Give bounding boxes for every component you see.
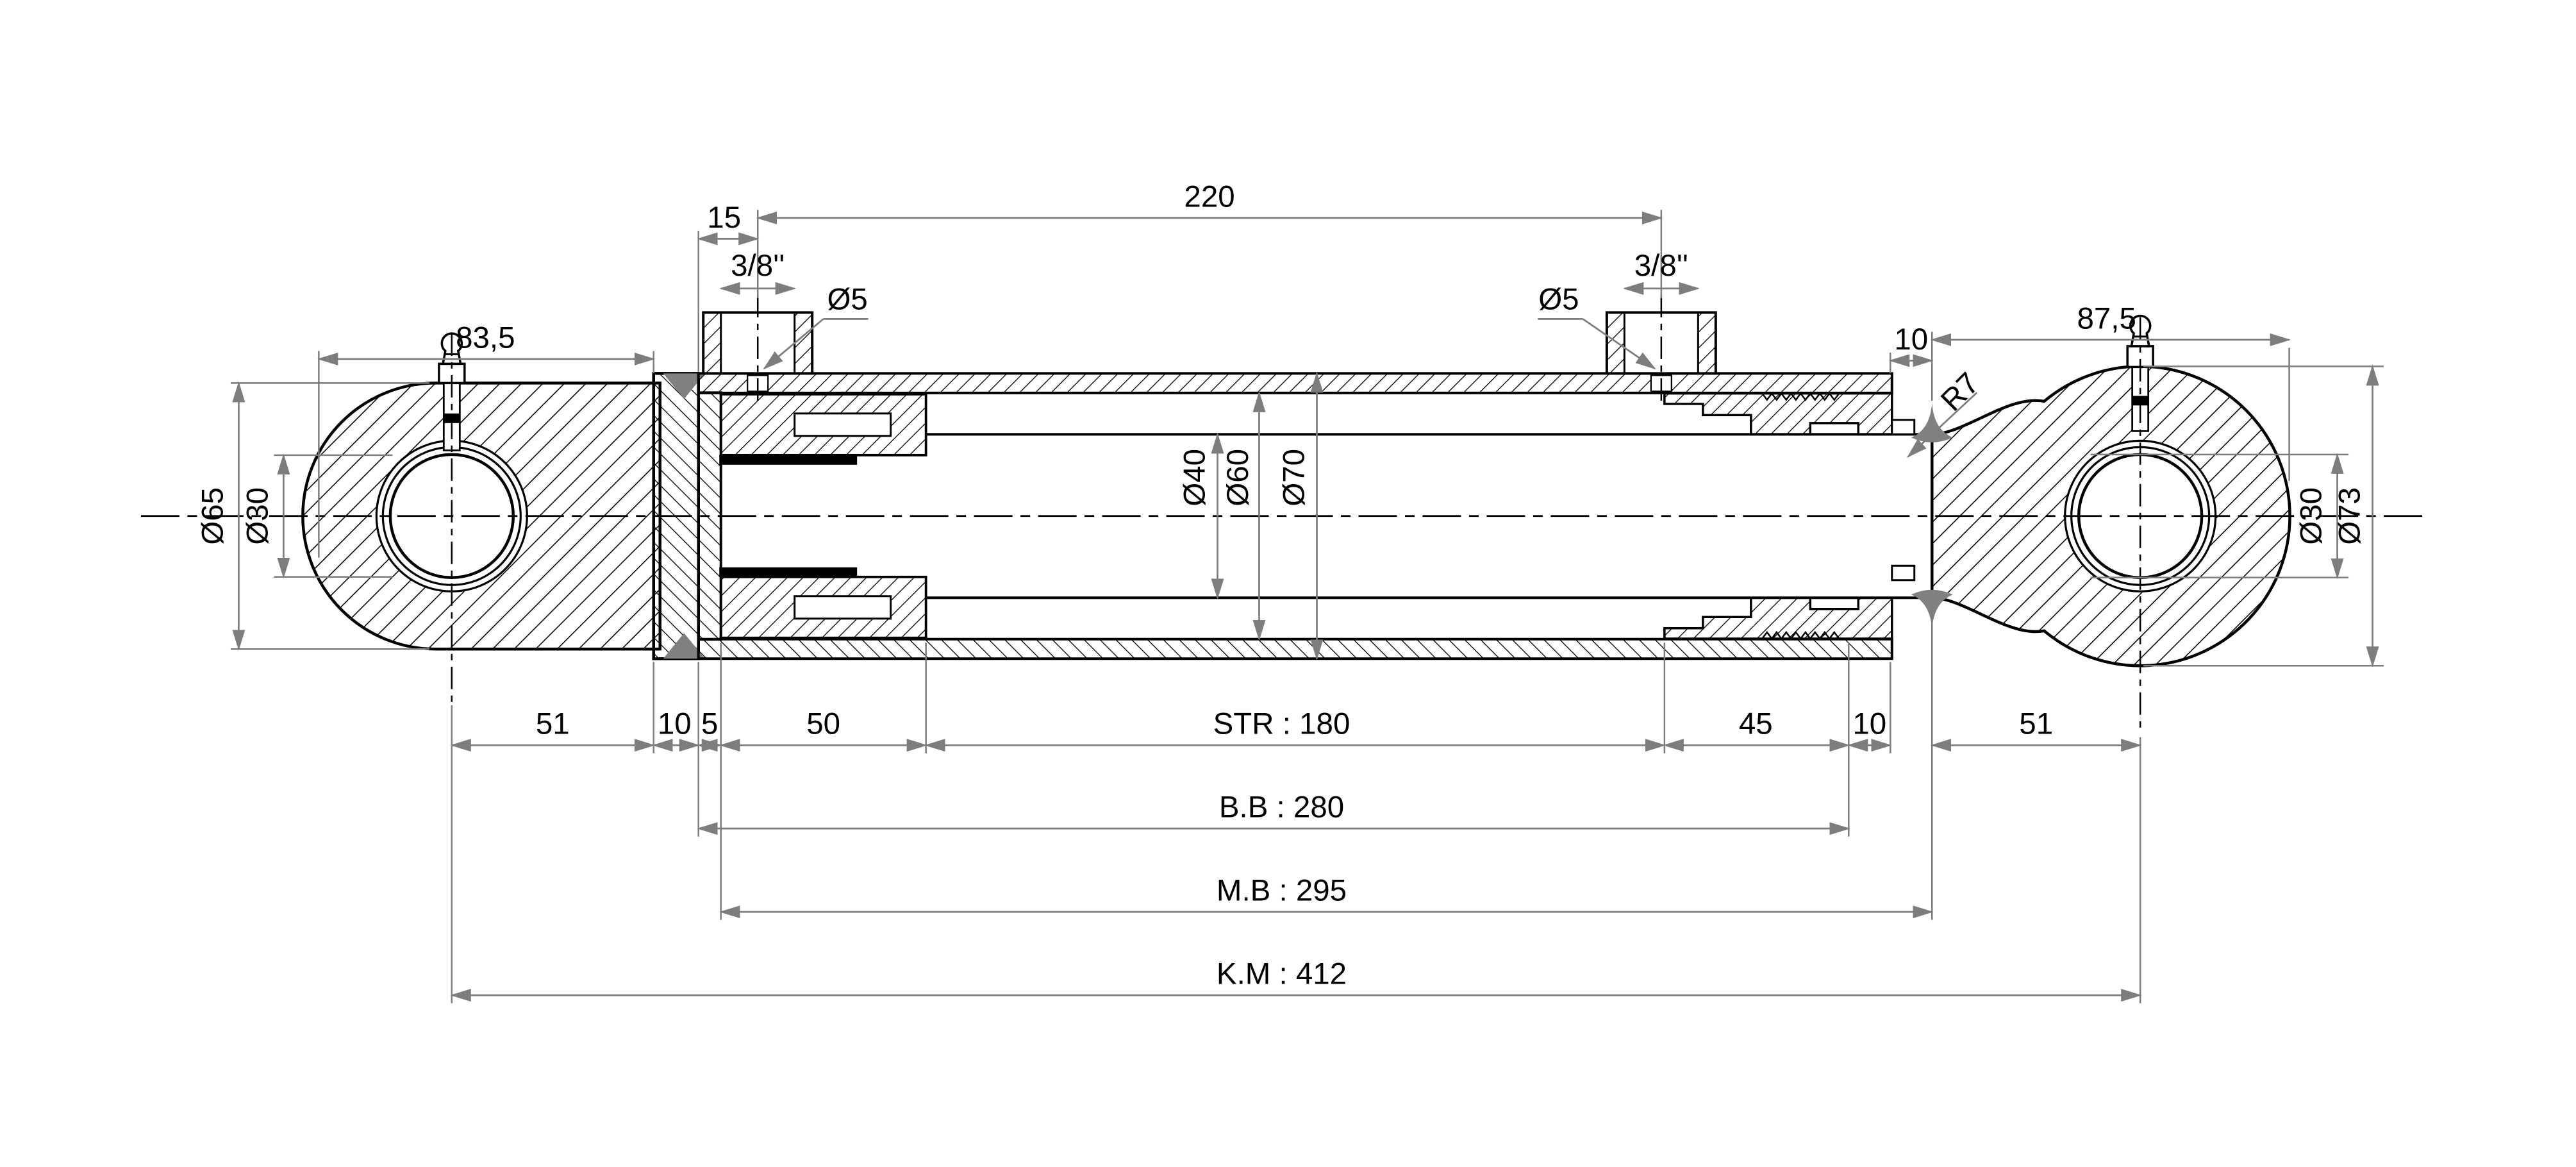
dim-51-right: 51 — [2019, 707, 2053, 741]
right-eye — [1911, 316, 2290, 666]
dim-220: 220 — [1184, 180, 1234, 214]
dim-hole-left: Ø5 — [827, 282, 868, 316]
weld-fillet-rod-top — [1911, 402, 1953, 442]
dim-87-5: 87,5 — [2077, 301, 2136, 335]
piston-seal-top — [719, 455, 857, 465]
dim-mb: M.B : 295 — [1217, 874, 1347, 908]
dim-50: 50 — [806, 707, 840, 741]
barrel-wall-bottom — [699, 639, 1892, 659]
dim-10-right: 10 — [1852, 707, 1886, 741]
dim-45: 45 — [1739, 707, 1773, 741]
dim-eye-right-od: Ø73 — [2333, 487, 2367, 545]
dim-r7: R7 — [1934, 366, 1986, 417]
dim-10-top: 10 — [1894, 323, 1928, 357]
dim-51-left: 51 — [536, 707, 570, 741]
piston-seal-bottom — [719, 567, 857, 577]
dim-83-5: 83,5 — [456, 321, 515, 355]
dim-eye-right-bore: Ø30 — [2295, 487, 2329, 545]
dim-km: K.M : 412 — [1217, 957, 1347, 991]
dim-thread-right: 3/8'' — [1634, 249, 1688, 283]
dim-stroke: STR : 180 — [1213, 707, 1350, 741]
dim-rod-diameter: Ø40 — [1178, 449, 1212, 507]
drawing-page: 51 10 5 50 STR : 180 45 10 51 B.B : 280 … — [0, 0, 2576, 1167]
dim-thread-left: 3/8'' — [731, 249, 785, 283]
dim-5: 5 — [701, 707, 718, 741]
dim-15: 15 — [707, 201, 741, 235]
dim-barrel-id: Ø60 — [1221, 449, 1255, 507]
dim-hole-right: Ø5 — [1538, 282, 1579, 316]
barrel-wall-top — [699, 373, 1892, 392]
technical-drawing: 51 10 5 50 STR : 180 45 10 51 B.B : 280 … — [0, 0, 2576, 1167]
dim-eye-left-bore: Ø30 — [240, 487, 274, 545]
dim-barrel-od: Ø70 — [1277, 449, 1311, 507]
dim-bb: B.B : 280 — [1219, 791, 1344, 825]
dim-10-left: 10 — [658, 707, 692, 741]
left-eye — [303, 333, 660, 649]
dim-eye-left-od: Ø65 — [195, 487, 229, 545]
cylinder-geometry — [141, 295, 2429, 734]
